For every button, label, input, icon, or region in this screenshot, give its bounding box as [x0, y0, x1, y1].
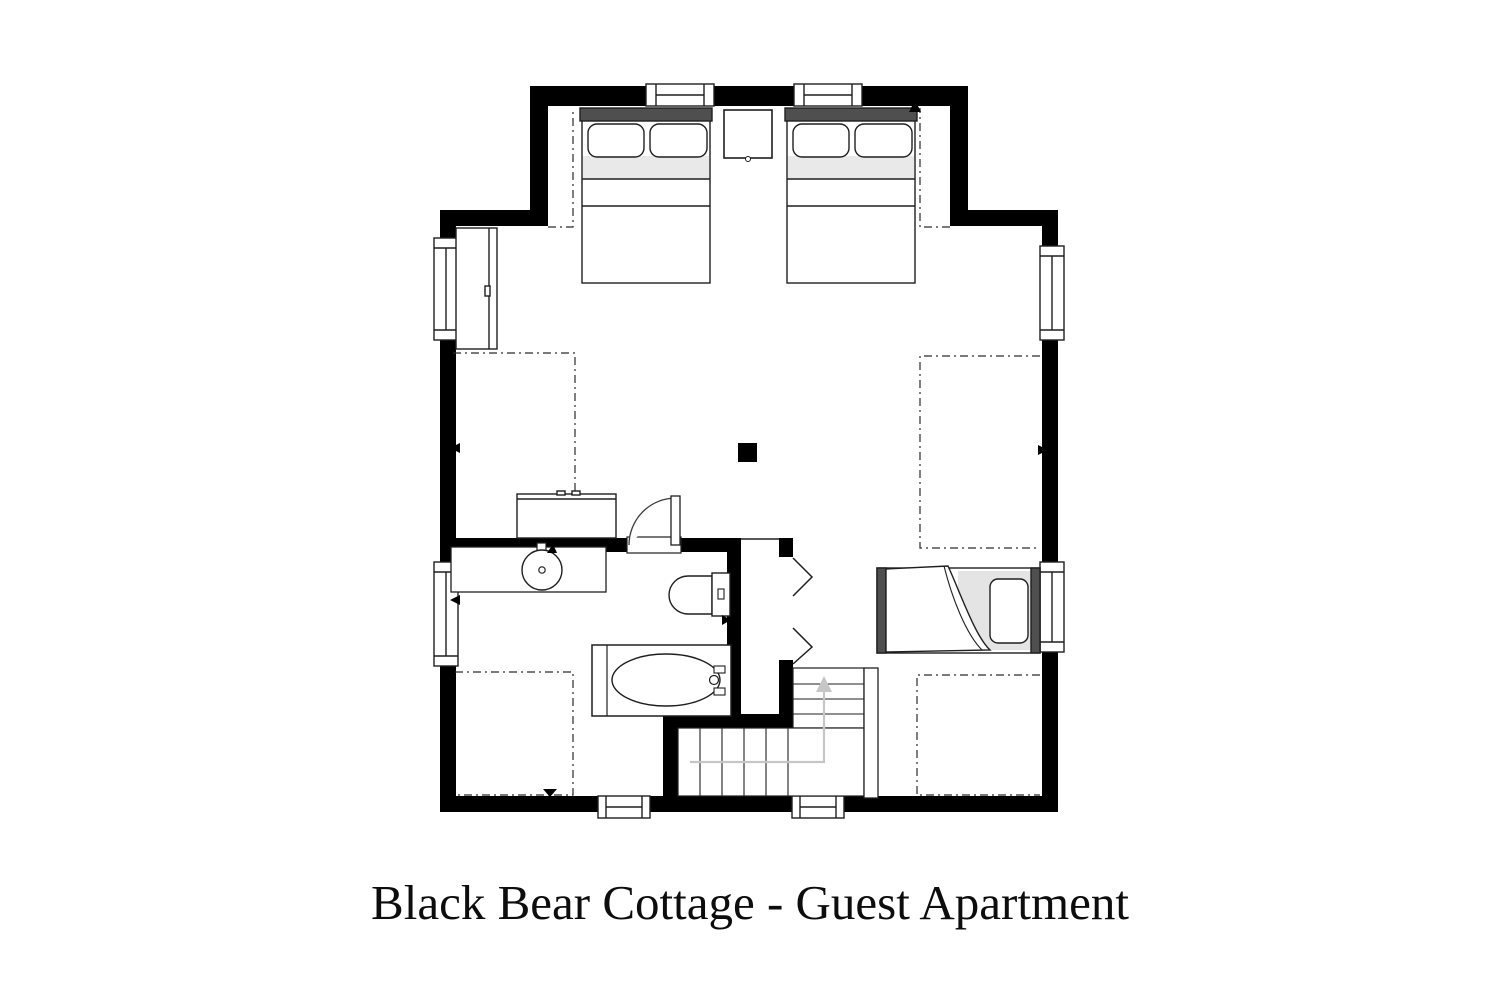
bed-pillow — [793, 124, 849, 157]
bifold-closet-doors — [793, 558, 812, 664]
stair-railing — [864, 668, 878, 798]
tub-handle — [714, 666, 725, 673]
wall-step-right — [950, 210, 1058, 226]
window-bottom-right — [792, 796, 844, 818]
plan-title: Black Bear Cottage - Guest Apartment — [0, 874, 1500, 931]
bed-headboard — [580, 108, 712, 121]
marker-bottom-down — [543, 789, 557, 797]
wall-step-left — [440, 210, 548, 226]
chimney-post — [738, 443, 757, 462]
door-leaf — [671, 496, 680, 545]
window-left-upper — [434, 238, 458, 340]
wall-bottom — [440, 796, 1058, 812]
bathtub — [592, 645, 731, 716]
bed-footboard — [877, 568, 886, 653]
dashzone-top-left — [548, 108, 573, 227]
bed-sheet-shade — [583, 156, 709, 179]
wall-top — [530, 86, 968, 106]
tub-basin — [612, 654, 720, 706]
dashzone-top-right — [920, 108, 950, 227]
bifold-panel — [793, 558, 812, 596]
window-right-upper — [1040, 246, 1064, 340]
stair-upper-flight — [793, 668, 864, 728]
sink-drain — [539, 567, 545, 573]
bed-headboard — [1031, 568, 1040, 653]
toilet — [669, 573, 730, 616]
nightstand-knob — [746, 157, 751, 162]
window-top-left — [646, 84, 714, 106]
wall-upper-right — [950, 86, 968, 226]
dashzone-mid-right — [920, 356, 1040, 548]
single-bed — [877, 566, 1040, 653]
toilet-bowl — [669, 576, 712, 614]
double-bed-left — [580, 108, 712, 283]
wall-stair-left — [663, 714, 678, 798]
dresser — [517, 491, 616, 538]
nightstand — [724, 110, 772, 162]
tub-spout — [710, 676, 719, 685]
window-right-lower — [1040, 562, 1064, 652]
bed-headboard — [785, 108, 917, 121]
tub-handle — [714, 688, 725, 695]
floor-plan-page: Black Bear Cottage - Guest Apartment — [0, 0, 1500, 1000]
dresser-knob — [557, 491, 565, 495]
wardrobe — [456, 228, 497, 349]
wall-closet-jamb-top — [779, 538, 793, 557]
dresser-knob — [572, 491, 580, 495]
bed-pillow — [650, 124, 707, 157]
dashzone-bottom-right — [917, 675, 1040, 795]
wall-upper-left — [530, 86, 548, 226]
bed-pillow — [990, 579, 1028, 643]
bed-sheet-shade — [788, 156, 914, 179]
window-top-right — [794, 84, 862, 106]
bathroom-vanity-sink — [451, 543, 606, 592]
bifold-panel — [793, 628, 812, 664]
toilet-flush-button — [718, 589, 724, 599]
dashzone-mid-left — [453, 353, 575, 492]
floor-plan-drawing — [0, 0, 1500, 1000]
dashzone-bottom-left — [455, 672, 573, 795]
double-bed-right — [785, 108, 917, 283]
bed-pillow — [855, 124, 912, 157]
wardrobe-handle — [485, 286, 490, 296]
window-bottom-left — [598, 796, 650, 818]
bed-pillow — [588, 124, 644, 157]
bathroom-door — [627, 496, 681, 553]
